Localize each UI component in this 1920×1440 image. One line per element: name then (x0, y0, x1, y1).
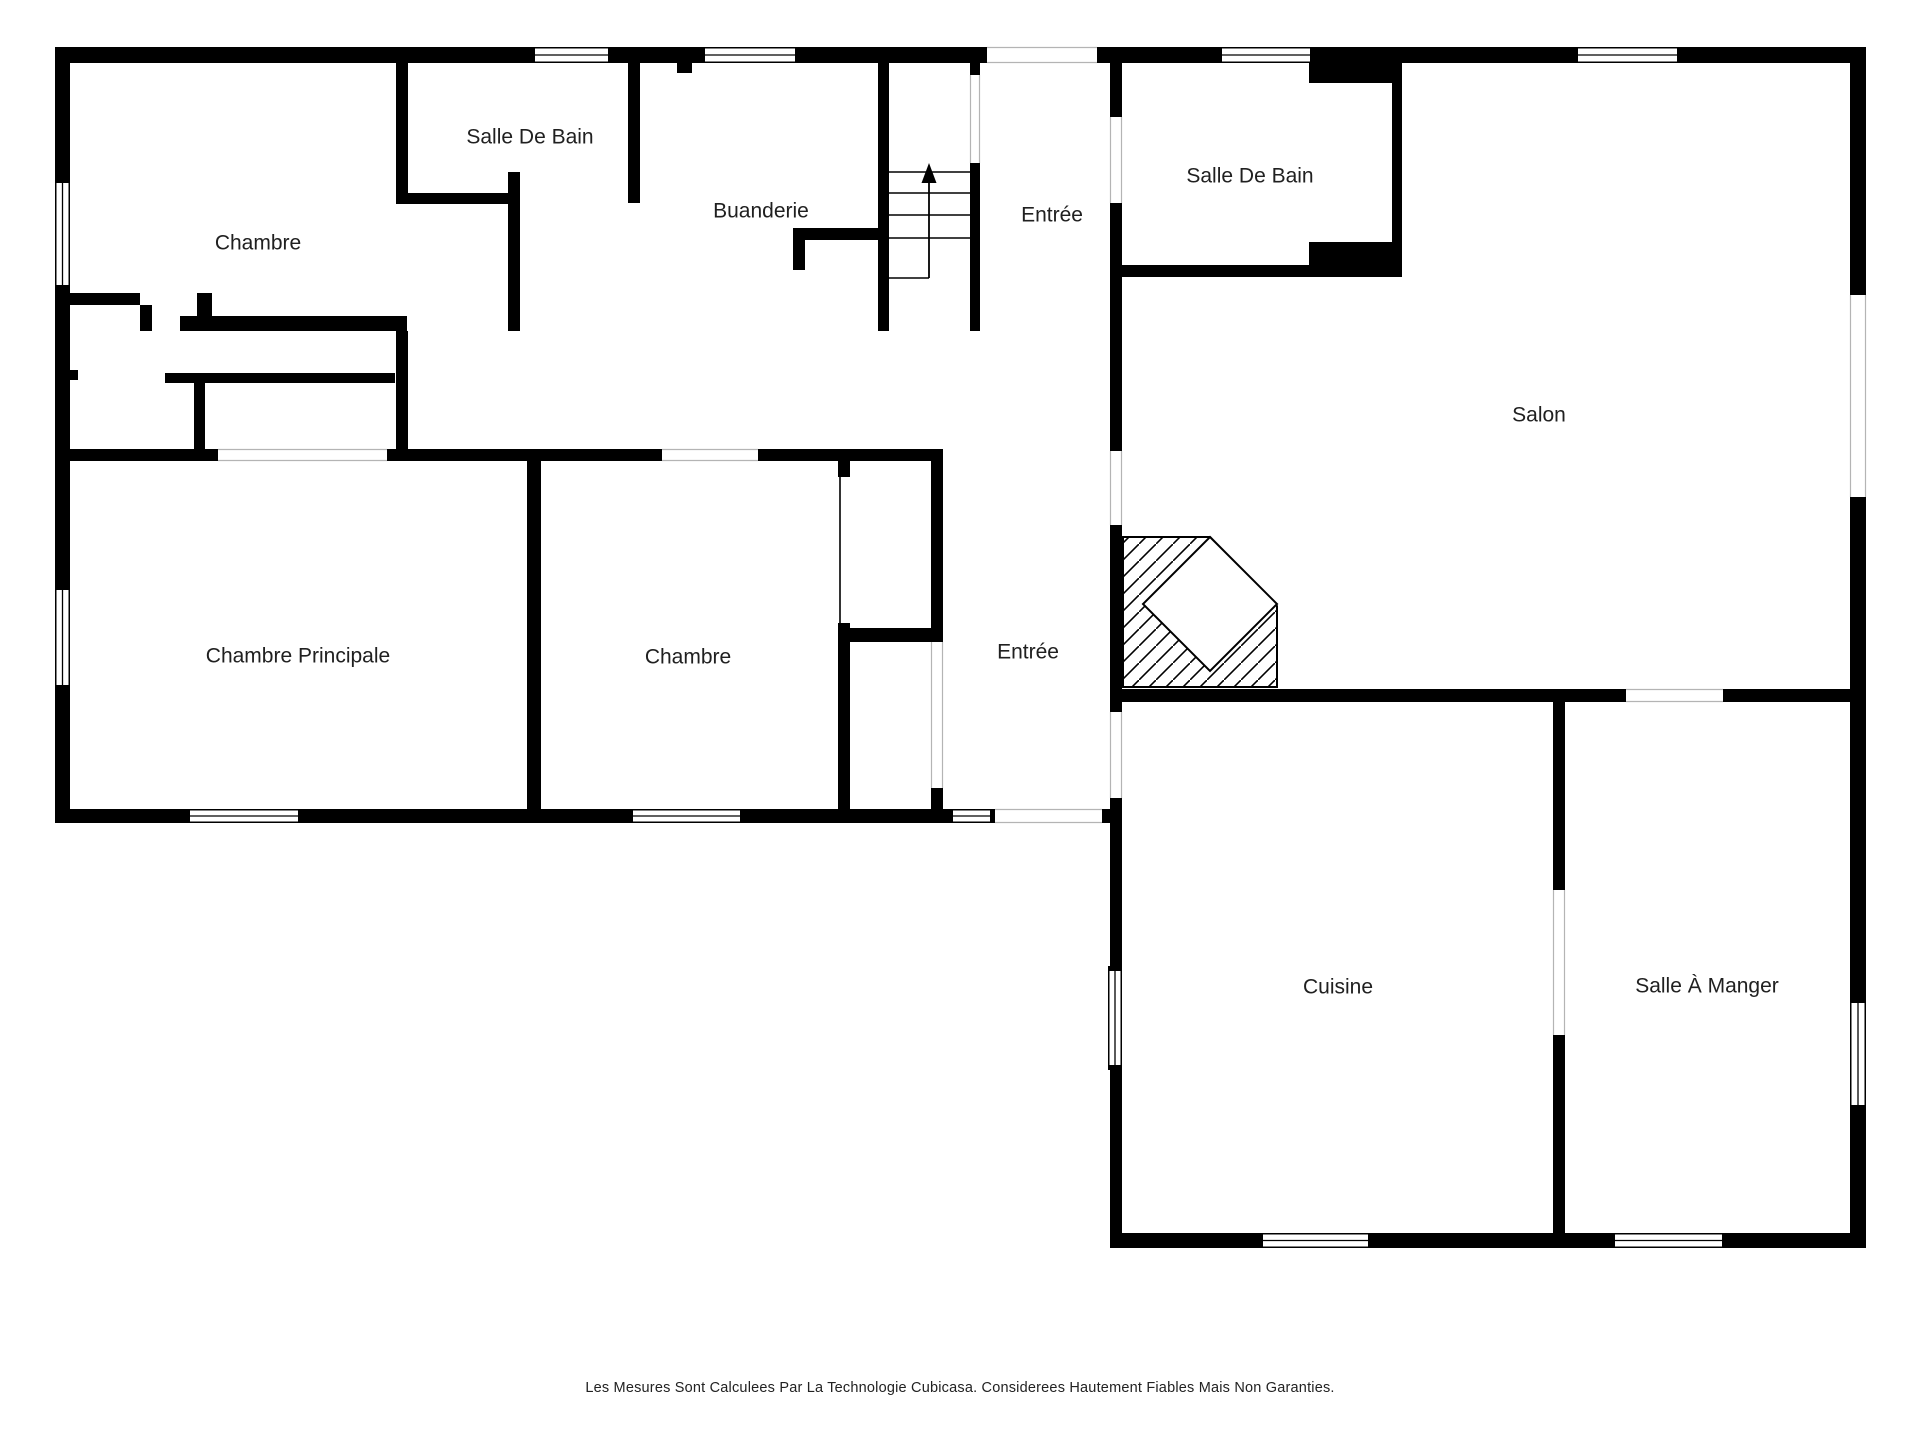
wall-segment (970, 163, 980, 331)
wall-opening (1110, 451, 1122, 525)
wall-segment (55, 370, 78, 380)
wall-segment (838, 623, 850, 809)
floor-plan-svg: ChambreSalle De BainBuanderieEntréeSalle… (0, 0, 1920, 1440)
wall-segment (1110, 203, 1122, 451)
wall-segment (758, 449, 943, 461)
wall-opening (1850, 295, 1866, 497)
wall-segment (1110, 525, 1122, 712)
wall-opening (1110, 712, 1122, 798)
wall-segment (1122, 265, 1402, 277)
wall-segment (1850, 47, 1866, 295)
room-label-cuisine: Cuisine (1303, 976, 1373, 999)
room-label-entree-haut: Entrée (1021, 204, 1083, 227)
wall-opening (1626, 689, 1723, 702)
wall-segment (55, 809, 185, 823)
wall-segment (55, 290, 70, 585)
window (55, 585, 70, 690)
wall-segment (396, 331, 408, 461)
wall-segment (970, 63, 980, 75)
wall-segment (508, 172, 520, 331)
disclaimer-text: Les Mesures Sont Calculees Par La Techno… (0, 1380, 1920, 1396)
wall-segment (1122, 689, 1626, 702)
wall-segment (1723, 689, 1850, 702)
wall-segment (1315, 47, 1573, 63)
wall-segment (1850, 1110, 1866, 1248)
room-label-salle-de-bain-droite: Salle De Bain (1186, 165, 1313, 188)
wall-segment (1110, 1070, 1122, 1248)
window (1610, 1233, 1727, 1248)
wall-opening (931, 642, 943, 788)
wall-segment (850, 628, 932, 642)
wall-segment (1110, 63, 1122, 117)
wall-segment (800, 47, 987, 63)
wall-opening (218, 449, 387, 461)
window (55, 178, 70, 290)
wall-opening (1553, 890, 1565, 1035)
wall-segment (396, 63, 408, 204)
wall-segment (1110, 1233, 1258, 1248)
wall-segment (55, 47, 530, 63)
entry-door (948, 809, 995, 823)
wall-segment (140, 305, 152, 331)
wall-segment (628, 63, 640, 203)
wall-segment (165, 373, 395, 383)
wall-segment (527, 461, 541, 809)
wall-segment (745, 809, 948, 823)
window (1258, 1233, 1373, 1248)
wall-segment (931, 461, 943, 642)
wall-segment (55, 690, 70, 823)
floor-plan: ChambreSalle De BainBuanderieEntréeSalle… (0, 0, 1920, 1440)
wall-opening (995, 809, 1102, 823)
wall-segment (194, 383, 205, 449)
window (628, 809, 745, 823)
wall-segment (1309, 242, 1402, 265)
wall-segment (1097, 47, 1217, 63)
wall-segment (931, 788, 943, 809)
window (185, 809, 303, 823)
window (1850, 998, 1866, 1110)
room-label-chambre-principale: Chambre Principale (206, 645, 390, 668)
wall-segment (303, 809, 628, 823)
plan-background (0, 0, 1920, 1440)
wall-segment (878, 63, 889, 331)
wall-segment (1727, 1233, 1866, 1248)
wall-segment (1309, 63, 1402, 83)
wall-segment (677, 63, 692, 73)
wall-opening (1110, 117, 1122, 203)
wall-segment (613, 47, 700, 63)
wall-segment (396, 193, 519, 204)
wall-segment (793, 228, 889, 240)
room-label-entree-bas: Entrée (997, 641, 1059, 664)
wall-segment (387, 449, 662, 461)
room-label-chambre-haut: Chambre (215, 232, 301, 255)
wall-segment (55, 47, 70, 178)
wall-segment (180, 316, 407, 331)
window (700, 47, 800, 63)
wall-segment (793, 240, 805, 270)
window (1108, 966, 1122, 1070)
wall-segment (1373, 1233, 1610, 1248)
room-label-salle-de-bain-haut: Salle De Bain (466, 126, 593, 149)
wall-segment (1110, 798, 1122, 966)
wall-segment (55, 449, 218, 461)
room-label-salle-a-manger: Salle À Manger (1635, 975, 1779, 998)
window (530, 47, 613, 63)
closet-door (838, 477, 850, 623)
wall-segment (838, 461, 850, 477)
wall-opening (662, 449, 758, 461)
room-label-chambre-bas: Chambre (645, 646, 731, 669)
wall-segment (1553, 1035, 1565, 1248)
window (1573, 47, 1682, 63)
wall-opening (987, 47, 1097, 63)
wall-opening (970, 75, 980, 163)
window (1217, 47, 1315, 63)
wall-segment (1850, 497, 1866, 998)
wall-segment (55, 293, 140, 305)
wall-segment (1392, 83, 1402, 265)
room-label-buanderie: Buanderie (713, 200, 809, 223)
wall-segment (1553, 701, 1565, 890)
room-label-salon: Salon (1512, 404, 1566, 427)
wall-segment (1682, 47, 1866, 63)
